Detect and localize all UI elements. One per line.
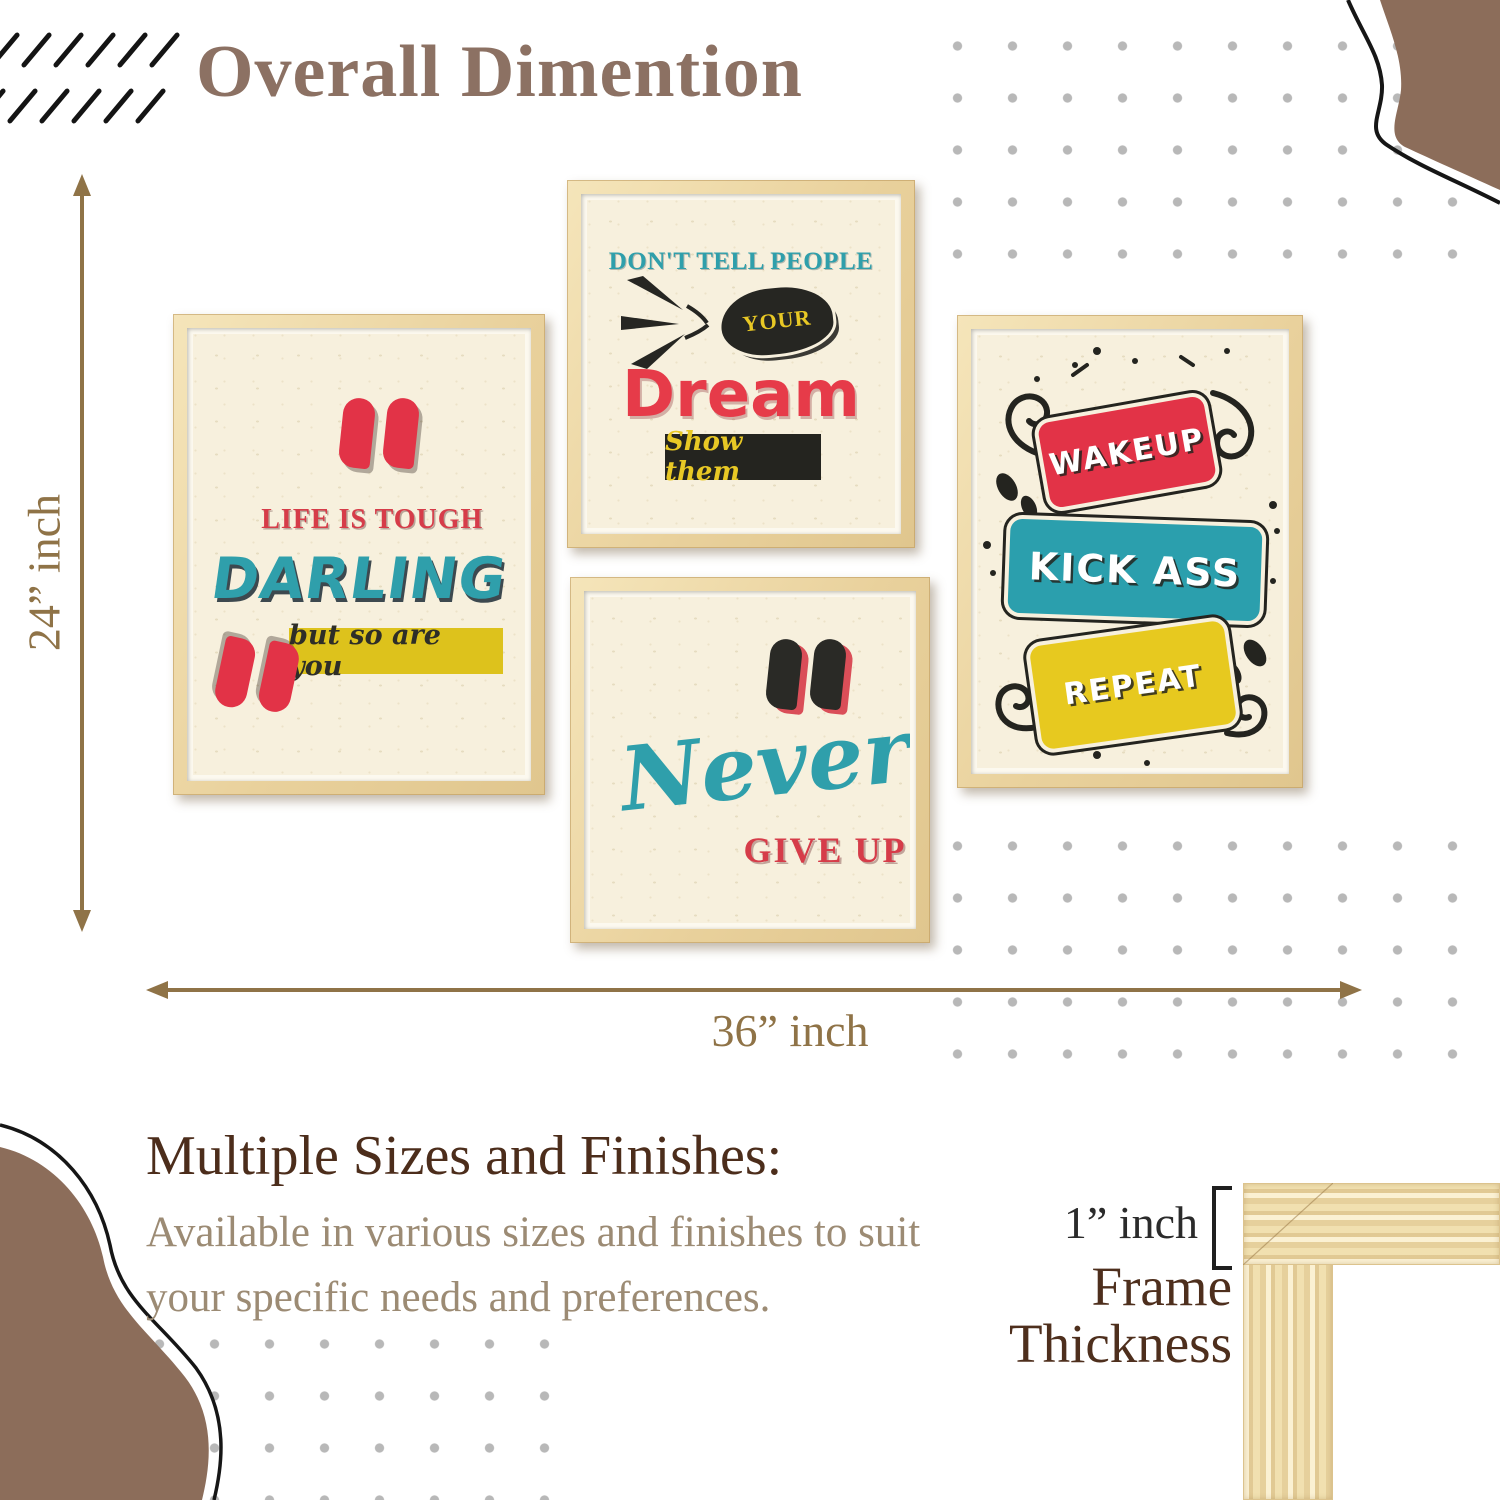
dots-pattern-mid-right (930, 820, 1500, 1068)
stripe-icon (0, 32, 21, 69)
arrow-up-icon (73, 174, 91, 196)
stripe-pattern-row-2 (0, 84, 180, 128)
arrow-down-icon (73, 910, 91, 932)
frame-thickness-label: Frame Thickness (820, 1258, 1232, 1372)
stripe-icon (6, 88, 38, 125)
width-dimension-arrow (166, 988, 1342, 992)
quote-close-icon (341, 398, 417, 468)
page-title: Overall Dimention (196, 30, 803, 115)
blob-top-right (1325, 0, 1500, 235)
stripe-icon (134, 88, 166, 125)
poster-never: Never GIVE UP (590, 597, 910, 923)
poster-frame-dream: DON'T TELL PEOPLE YOUR Dream Show them (567, 180, 915, 548)
stripe-pattern-row-1 (2, 28, 194, 72)
poster-repeat: WAKEUP KICK ASS REPEAT (977, 335, 1283, 768)
arrow-right-icon (1340, 981, 1362, 999)
poster-frame-repeat: WAKEUP KICK ASS REPEAT (957, 315, 1303, 788)
info-body-line2: your specific needs and preferences. (146, 1274, 770, 1321)
info-body: Available in various sizes and finishes … (146, 1200, 920, 1331)
arrow-left-icon (146, 981, 168, 999)
stripe-icon (102, 88, 134, 125)
info-body-line1: Available in various sizes and finishes … (146, 1209, 920, 1256)
never-line2: GIVE UP (740, 829, 910, 871)
stripe-icon (0, 88, 7, 125)
height-dimension-label: 24” inch (18, 423, 71, 723)
poster-dream: DON'T TELL PEOPLE YOUR Dream Show them (587, 200, 895, 528)
never-line1: Never (615, 699, 904, 832)
frame-thickness-value: 1” inch (940, 1196, 1198, 1249)
quote-open-icon (216, 636, 299, 714)
darling-line1: LIFE IS TOUGH (193, 504, 525, 536)
frame-mat: Never GIVE UP (584, 591, 916, 929)
poster-frame-never: Never GIVE UP (570, 577, 930, 943)
dream-badge: YOUR (718, 282, 836, 359)
stripe-icon (52, 32, 84, 69)
quote-close-icon (768, 639, 844, 709)
repeat-card2: KICK ASS (1007, 519, 1262, 622)
info-heading: Multiple Sizes and Finishes: (146, 1124, 782, 1188)
infographic-canvas: Overall Dimention 24” inch 36” inch LIFE… (0, 0, 1500, 1500)
frame-thickness-label-line1: Frame (820, 1258, 1232, 1315)
darling-line2: DARLING (193, 546, 525, 612)
dream-line2: Dream (587, 358, 895, 432)
dream-banner: Show them (665, 434, 821, 480)
poster-darling: LIFE IS TOUGH DARLING but so are you (193, 334, 525, 775)
frame-mat: WAKEUP KICK ASS REPEAT (971, 329, 1289, 774)
height-dimension-arrow (80, 194, 84, 912)
frame-corner-miter-joint (1243, 1183, 1333, 1265)
stripe-icon (148, 32, 180, 69)
shout-rays-icon (621, 276, 721, 371)
stripe-icon (38, 88, 70, 125)
frame-mat: DON'T TELL PEOPLE YOUR Dream Show them (581, 194, 901, 534)
frame-thickness-label-line2: Thickness (820, 1315, 1232, 1372)
stripe-icon (70, 88, 102, 125)
width-dimension-label: 36” inch (655, 1004, 925, 1057)
frame-mat: LIFE IS TOUGH DARLING but so are you (187, 328, 531, 781)
poster-frame-darling: LIFE IS TOUGH DARLING but so are you (173, 314, 545, 795)
dream-line1: DON'T TELL PEOPLE (587, 248, 895, 276)
stripe-icon (84, 32, 116, 69)
darling-banner: but so are you (289, 628, 503, 674)
stripe-icon (116, 32, 148, 69)
stripe-icon (20, 32, 52, 69)
